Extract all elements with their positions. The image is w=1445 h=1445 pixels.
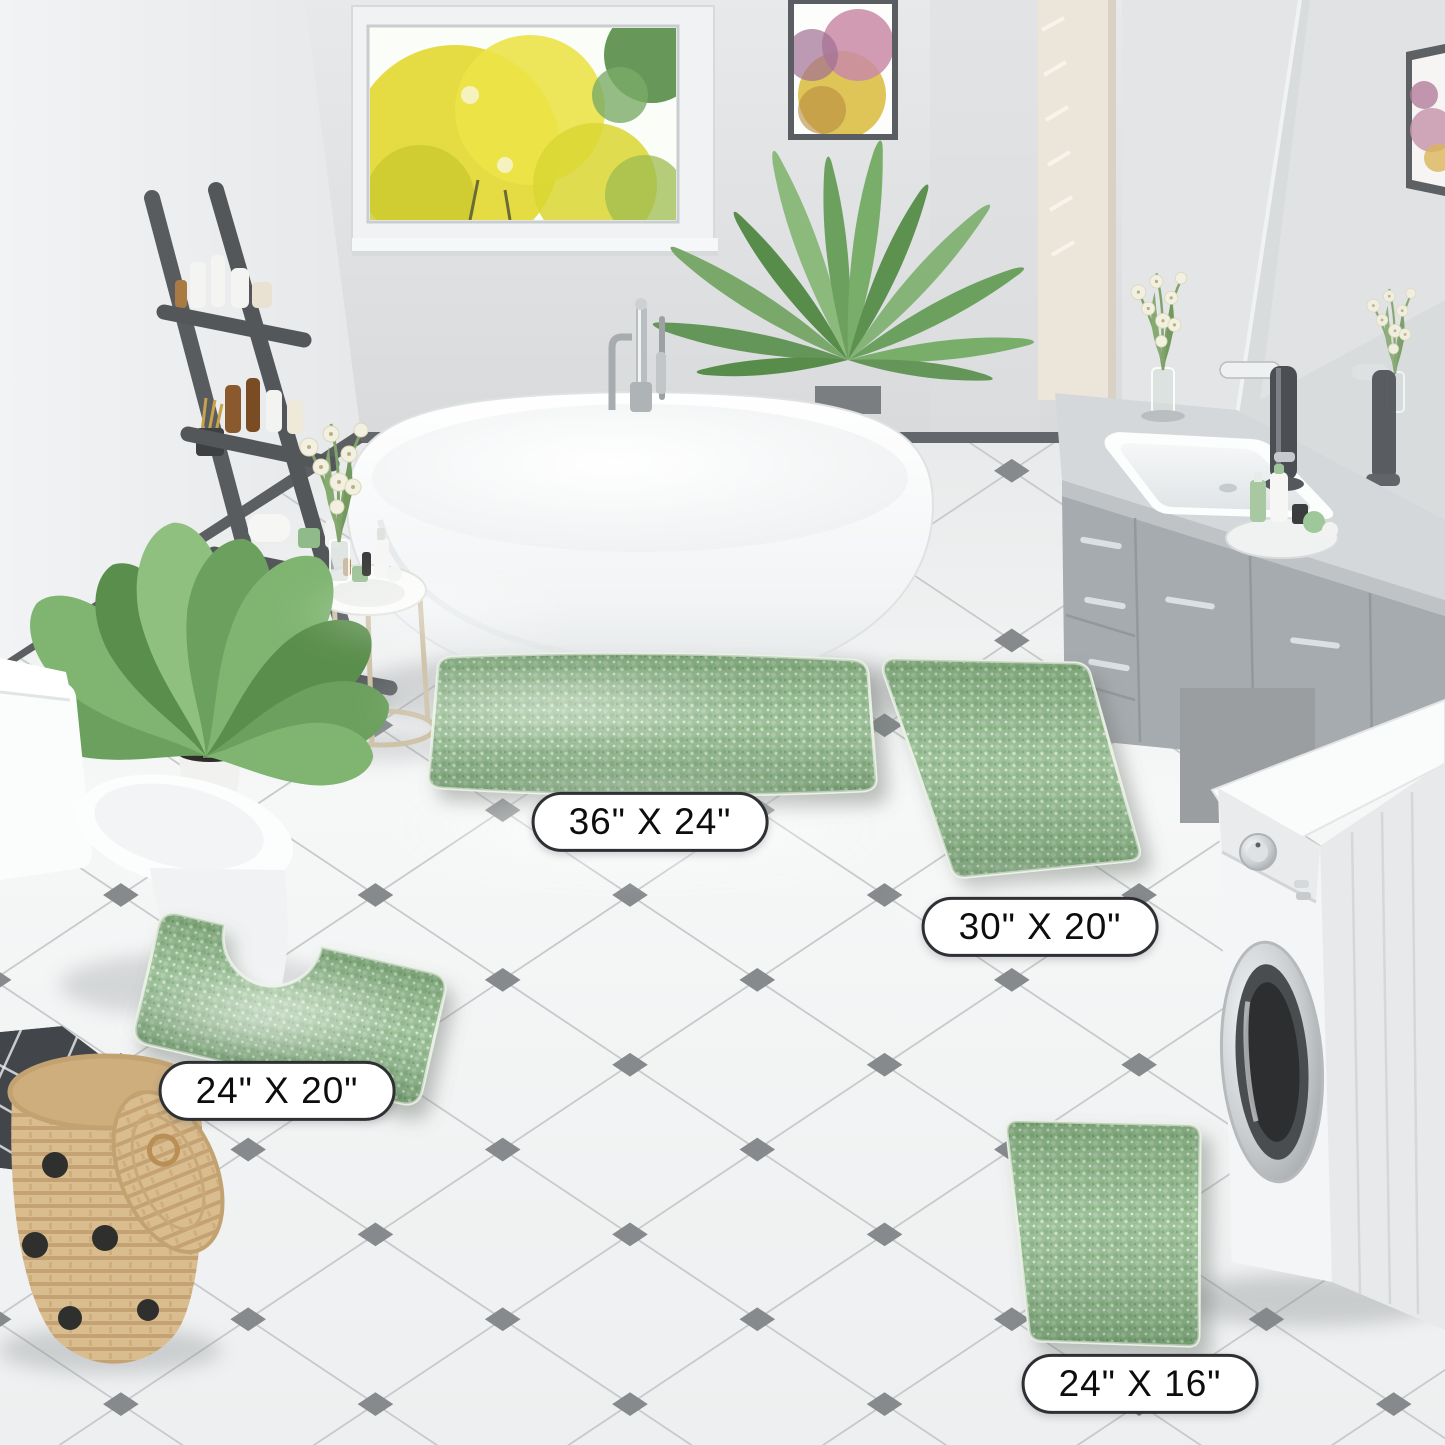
window-sill-shadow bbox=[352, 251, 718, 256]
bathroom-illustration bbox=[0, 0, 1445, 1445]
size-label-large-rug: 36" X 24" bbox=[532, 792, 769, 852]
size-label-contour-rug: 24" X 20" bbox=[159, 1061, 396, 1121]
size-label-small-rug: 24" X 16" bbox=[1022, 1354, 1259, 1414]
size-label-runner-rug: 30" X 20" bbox=[922, 897, 1159, 957]
bathroom-scene: 36" X 24" 30" X 20" 24" X 20" 24" X 16" bbox=[0, 0, 1445, 1445]
mirror-art-reflection bbox=[1406, 44, 1445, 196]
framed-art bbox=[786, 0, 898, 140]
washer-button bbox=[1294, 880, 1309, 888]
window-sill bbox=[352, 238, 718, 251]
tub-faucet-valve bbox=[630, 382, 652, 412]
rug-small bbox=[1007, 1121, 1200, 1346]
window bbox=[350, 6, 718, 256]
washer-button-2 bbox=[1296, 892, 1311, 900]
tall-cabinet bbox=[1038, 0, 1116, 400]
bathtub-basin bbox=[372, 404, 908, 552]
